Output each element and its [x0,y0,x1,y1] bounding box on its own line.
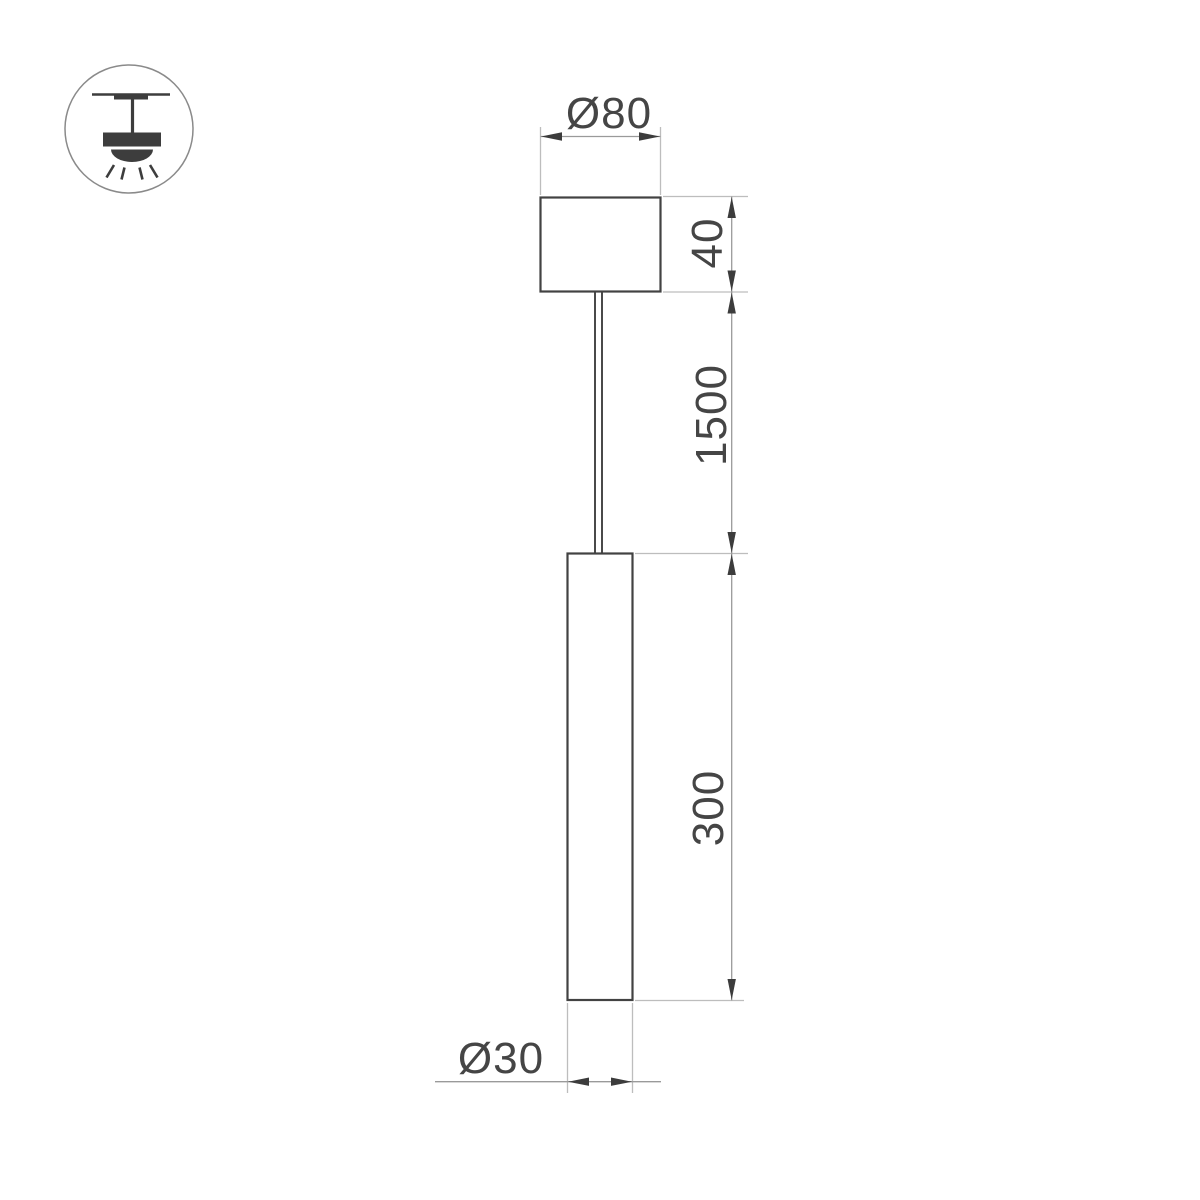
arrowhead-down [728,532,736,553]
drawing-page: Ø80 40 1500 300 [0,0,1200,1200]
icon-mount-plate [114,95,148,100]
canopy-height-label: 40 [683,218,732,269]
luminaire-outline [541,198,661,1001]
icon-circle-border [65,65,193,193]
canopy-outline [541,198,661,292]
icon-lamp-body [103,133,161,147]
arrowhead-down [728,271,736,292]
dimension-tube-length: 300 [635,554,744,1001]
dimension-canopy-diameter: Ø80 [541,89,661,195]
arrowhead-left [541,132,562,140]
technical-drawing-canvas: Ø80 40 1500 300 [0,0,1200,1200]
arrowhead-up [728,293,736,314]
suspension-length-label: 1500 [687,364,736,466]
dimension-canopy-height: 40 [663,197,748,293]
arrowhead-up [728,197,736,218]
tube-diameter-label: Ø30 [458,1034,544,1083]
dimension-tube-diameter: Ø30 [435,1003,661,1093]
ceiling-pendant-mount-icon [65,65,193,193]
arrowhead-left [568,1078,589,1086]
arrowhead-up [728,554,736,575]
tube-outline [568,554,633,1001]
tube-length-label: 300 [684,770,733,846]
arrowhead-down [728,979,736,1000]
dimension-suspension-length: 1500 [635,292,748,554]
canopy-diameter-label: Ø80 [566,89,652,138]
arrowhead-right [611,1078,632,1086]
